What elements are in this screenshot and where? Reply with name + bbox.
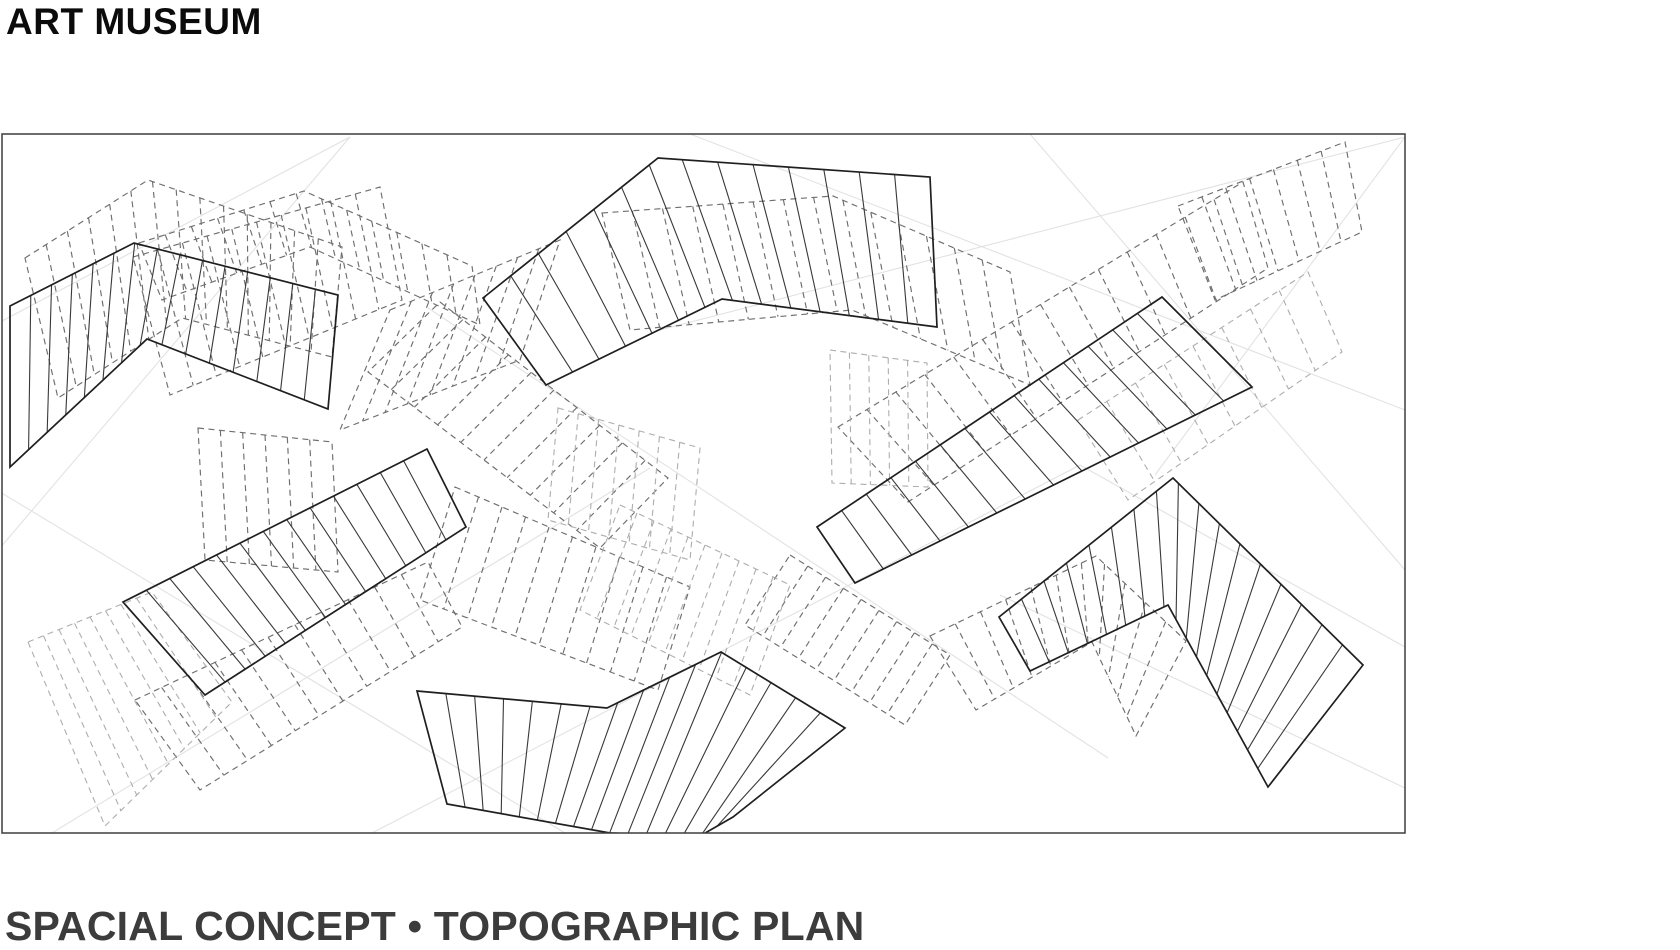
band-ghost-top-left-tilted bbox=[133, 187, 402, 395]
band-terrace-north-center bbox=[483, 158, 937, 385]
band-faint-center-ladder bbox=[580, 505, 790, 695]
band-ghost-left-middle-box bbox=[198, 428, 338, 572]
band-hatch-lines bbox=[867, 200, 1242, 486]
band-hatch-lines bbox=[955, 563, 1165, 716]
band-ghost-right-chevron-echo bbox=[930, 556, 1186, 736]
band-hatch-lines bbox=[763, 566, 932, 714]
construction-lines bbox=[0, 134, 1405, 833]
band-outline bbox=[368, 302, 668, 548]
band-ghost-center-ladder bbox=[368, 302, 668, 548]
band-hatch-lines bbox=[1107, 291, 1316, 482]
drawing-frame-border bbox=[2, 134, 1405, 833]
band-ghost-center-steep-band bbox=[340, 240, 560, 430]
band-ghost-diagonal-upper bbox=[838, 182, 1268, 502]
band-outline bbox=[930, 556, 1186, 736]
band-outline bbox=[838, 182, 1268, 502]
band-terrace-west-middle bbox=[123, 449, 466, 695]
band-ghost-mid-right-descent bbox=[745, 555, 950, 725]
band-hatch-lines bbox=[632, 197, 1002, 373]
band-outline bbox=[133, 187, 402, 395]
band-hatch-lines bbox=[44, 598, 217, 810]
band-hatch-lines bbox=[220, 430, 316, 570]
band-faint-center-right-box bbox=[830, 350, 928, 487]
band-terrace-south-east bbox=[999, 478, 1363, 787]
band-outline bbox=[830, 350, 928, 487]
band-outline bbox=[580, 505, 790, 695]
band-ghost-top-left-chevron bbox=[25, 180, 342, 398]
band-outline bbox=[999, 478, 1363, 787]
band-terrace-east-diagonal bbox=[817, 297, 1252, 583]
drawing-content bbox=[0, 134, 1405, 836]
topographic-plan-drawing bbox=[0, 0, 1680, 950]
band-outline bbox=[340, 240, 560, 430]
band-hatch-lines bbox=[162, 575, 439, 776]
band-hatch-lines bbox=[391, 320, 645, 531]
band-ghost-top-right-strip bbox=[1178, 142, 1362, 300]
band-hatch-lines bbox=[511, 160, 908, 372]
band-hatch-lines bbox=[842, 313, 1224, 569]
band-faint-bottom-left-fan bbox=[28, 592, 232, 826]
band-hatch-lines bbox=[146, 461, 446, 682]
band-outline bbox=[1178, 142, 1362, 300]
drawing-caption: SPACIAL CONCEPT • TOPOGRAPHIC PLAN bbox=[5, 903, 864, 950]
band-hatch-lines bbox=[597, 513, 773, 687]
band-hatch-lines bbox=[446, 652, 820, 835]
band-outline bbox=[123, 449, 466, 695]
band-outline bbox=[745, 555, 950, 725]
band-outline bbox=[817, 297, 1252, 583]
band-hatch-lines bbox=[849, 353, 908, 487]
band-outline bbox=[28, 592, 232, 826]
band-outline bbox=[483, 158, 937, 385]
band-outline bbox=[10, 243, 338, 467]
band-terrace-north-west bbox=[10, 243, 338, 467]
band-hatch-lines bbox=[1021, 483, 1342, 768]
